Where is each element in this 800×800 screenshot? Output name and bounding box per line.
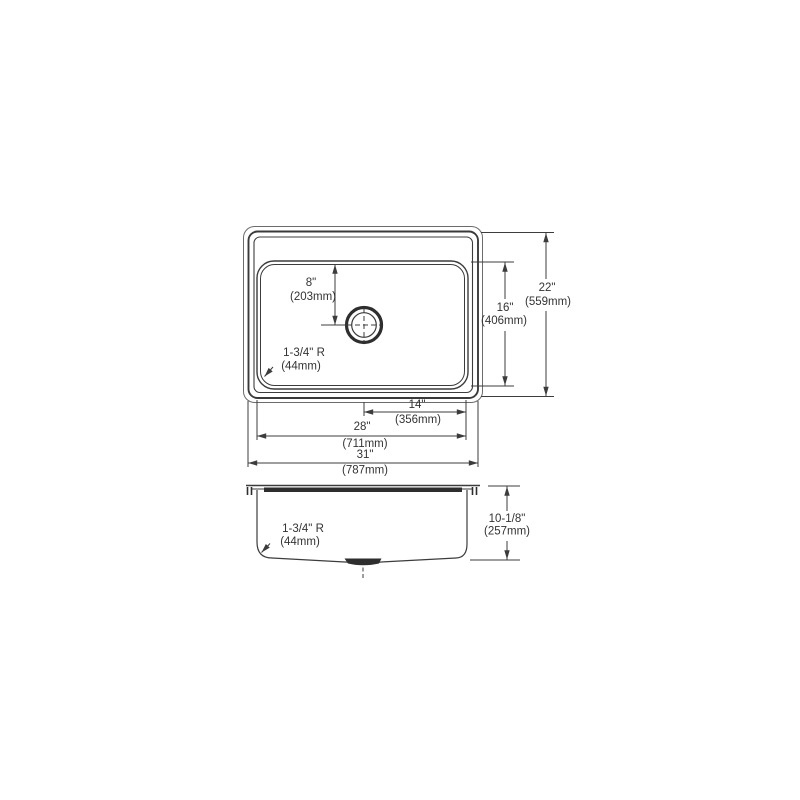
dim-8in-label: 8" bbox=[306, 277, 316, 289]
sink-outer-profile bbox=[244, 227, 483, 403]
side-corner-radius-label: 1-3/4" R bbox=[282, 523, 324, 535]
drain-boss bbox=[345, 559, 382, 566]
dim-depth-mm-label: (257mm) bbox=[484, 526, 530, 538]
bowl-opening-band bbox=[264, 488, 462, 493]
dim-31in-label: 31" bbox=[357, 449, 374, 461]
dim-depth-label: 10-1/8" bbox=[489, 513, 526, 525]
sink-technical-drawing: 8" (203mm) 1-3/4" R (44mm) 16" (406mm) 2… bbox=[0, 0, 800, 800]
dim-28in-label: 28" bbox=[354, 421, 371, 433]
sink-edge bbox=[249, 232, 479, 399]
corner-radius-leader-arrow bbox=[262, 544, 271, 553]
dim-16in-label: 16" bbox=[497, 302, 514, 314]
dim-31in-mm-label: (787mm) bbox=[342, 465, 388, 477]
dim-16in-mm-label: (406mm) bbox=[481, 315, 527, 327]
side-corner-radius-mm-label: (44mm) bbox=[280, 536, 320, 548]
dim-14in-label: 14" bbox=[409, 399, 426, 411]
drawing-canvas: 8" (203mm) 1-3/4" R (44mm) 16" (406mm) 2… bbox=[0, 0, 800, 800]
dim-22in-mm-label: (559mm) bbox=[525, 296, 571, 308]
dim-14in-mm-label: (356mm) bbox=[395, 414, 441, 426]
top-corner-radius-label: 1-3/4" R bbox=[283, 347, 325, 359]
side-view bbox=[246, 486, 480, 581]
dim-22in-label: 22" bbox=[539, 282, 556, 294]
corner-radius-leader-arrow bbox=[265, 367, 274, 377]
dim-8in-mm-label: (203mm) bbox=[290, 291, 336, 303]
top-view bbox=[244, 227, 483, 403]
top-corner-radius-mm-label: (44mm) bbox=[281, 361, 321, 373]
